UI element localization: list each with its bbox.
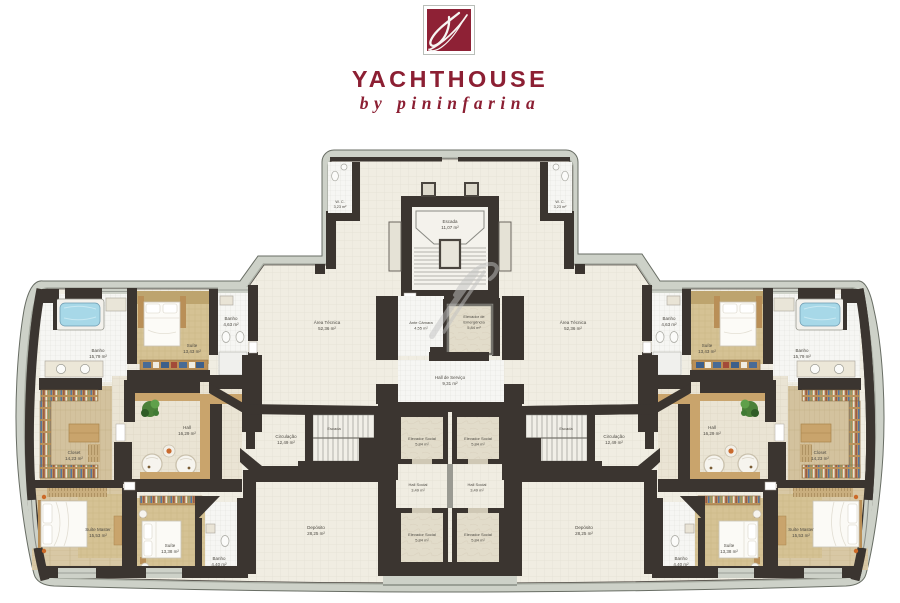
- svg-text:Hall Social3,49 m²: Hall Social3,49 m²: [409, 482, 428, 493]
- svg-text:Depósito28,25 m²: Depósito28,25 m²: [575, 525, 593, 536]
- svg-text:Banho4,40 m²: Banho4,40 m²: [673, 556, 689, 567]
- svg-text:YACHTHOUSE: YACHTHOUSE: [352, 66, 548, 92]
- svg-text:Escada: Escada: [327, 426, 341, 431]
- svg-text:Banho4,63 m²: Banho4,63 m²: [223, 316, 239, 327]
- svg-text:Depósito28,25 m²: Depósito28,25 m²: [307, 525, 325, 536]
- svg-text:Escada: Escada: [559, 426, 573, 431]
- svg-text:Escada11,07 m²: Escada11,07 m²: [441, 219, 459, 230]
- svg-text:Banho4,63 m²: Banho4,63 m²: [661, 316, 677, 327]
- svg-text:by pininfarina: by pininfarina: [360, 93, 541, 113]
- svg-text:Banho4,40 m²: Banho4,40 m²: [211, 556, 227, 567]
- svg-text:Circulação12,49 m²: Circulação12,49 m²: [603, 434, 625, 445]
- svg-text:Circulação12,49 m²: Circulação12,49 m²: [275, 434, 297, 445]
- svg-text:Hall Social3,49 m²: Hall Social3,49 m²: [468, 482, 487, 493]
